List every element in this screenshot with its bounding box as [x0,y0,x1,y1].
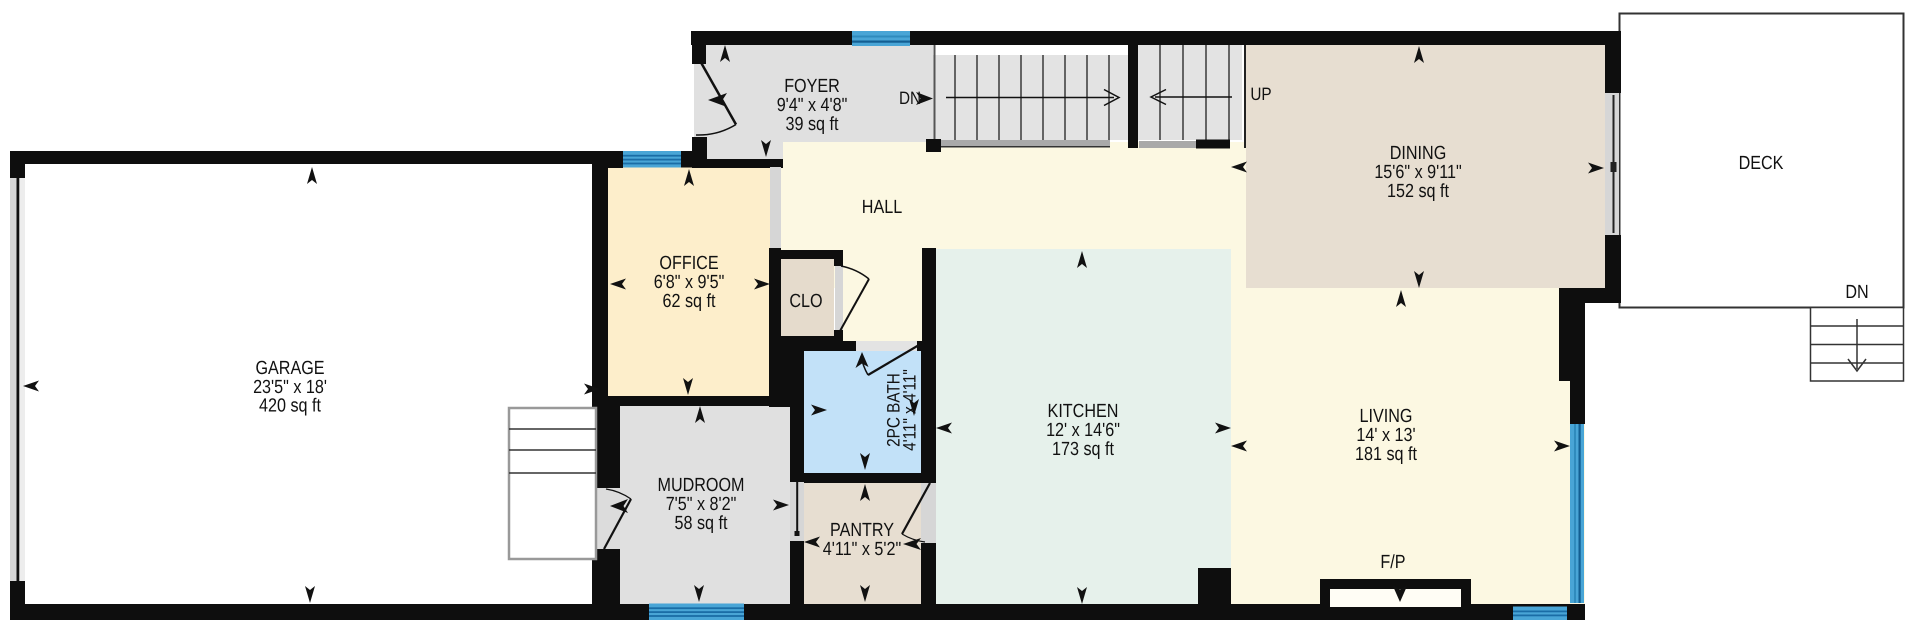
svg-text:FOYER: FOYER [784,76,840,97]
svg-text:4'11" x 4'11": 4'11" x 4'11" [900,369,920,451]
svg-text:152 sq ft: 152 sq ft [1387,181,1450,202]
svg-text:62 sq ft: 62 sq ft [663,291,717,312]
svg-text:PANTRY: PANTRY [830,520,894,541]
svg-text:DECK: DECK [1739,153,1784,174]
svg-text:DINING: DINING [1390,143,1447,164]
svg-text:420 sq ft: 420 sq ft [259,396,322,417]
svg-text:173 sq ft: 173 sq ft [1052,439,1115,460]
svg-text:CLO: CLO [789,291,822,312]
svg-text:UP: UP [1250,84,1271,104]
svg-text:GARAGE: GARAGE [255,358,324,379]
svg-text:4'11" x 5'2": 4'11" x 5'2" [823,539,901,560]
svg-text:F/P: F/P [1380,552,1405,573]
svg-text:DN: DN [899,88,921,108]
svg-text:OFFICE: OFFICE [659,253,718,274]
svg-text:58 sq ft: 58 sq ft [675,513,729,534]
svg-text:12' x 14'6": 12' x 14'6" [1046,420,1120,441]
svg-text:181 sq ft: 181 sq ft [1355,444,1418,465]
svg-text:7'5" x 8'2": 7'5" x 8'2" [666,494,737,515]
svg-text:6'8" x 9'5": 6'8" x 9'5" [654,272,725,293]
svg-text:LIVING: LIVING [1360,406,1413,427]
svg-text:15'6" x 9'11": 15'6" x 9'11" [1374,162,1461,183]
svg-text:9'4" x 4'8": 9'4" x 4'8" [777,95,848,116]
svg-text:14' x 13': 14' x 13' [1356,425,1415,446]
svg-text:HALL: HALL [862,197,902,218]
svg-text:KITCHEN: KITCHEN [1048,401,1119,422]
svg-text:MUDROOM: MUDROOM [657,475,744,496]
svg-text:39 sq ft: 39 sq ft [786,114,840,135]
svg-text:DN: DN [1845,282,1868,303]
